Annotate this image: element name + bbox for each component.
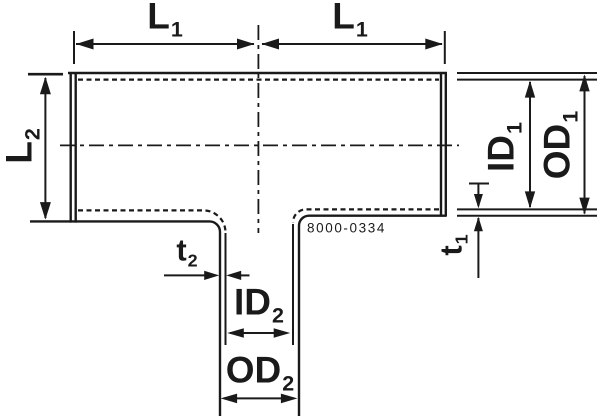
label-subscript: 1 [452,234,472,244]
od1-arrow-up-icon [579,74,589,91]
l2-arrow-up-icon [40,77,51,95]
label-subscript: 2 [282,371,294,395]
tee-outline-svg [0,0,600,416]
label-subscript: 2 [272,303,284,327]
t2-arrow-right-icon [204,271,219,280]
dimension-label-od1: OD1 [539,111,576,179]
dimension-label-l1-right: L1 [332,0,368,35]
dimension-label-t1: t1 [436,234,467,255]
od2-arrow-right-icon [281,394,298,404]
label-subscript: 1 [171,17,183,41]
label-text: L [0,141,40,164]
dimension-label-id2: ID2 [234,284,284,321]
id2-arrow-left-icon [227,328,244,338]
t2-arrow-left-icon [226,271,241,280]
branch-right-outer-wall-and-pipe-bottom-right [299,216,446,416]
dimension-label-l2: L2 [1,128,38,164]
label-text: OD [226,350,282,391]
label-text: ID [481,135,522,172]
dimension-label-l1-left: L1 [147,0,183,35]
label-subscript: 1 [558,111,582,123]
l2-arrow-down-icon [40,202,51,220]
label-text: L [147,0,170,37]
l1-right-arrow-east-icon [425,39,443,50]
centerline-group [60,25,459,233]
dimension-label-t2: t2 [176,235,197,266]
t1-arrow-up-icon [474,217,483,231]
dimension-label-od2: OD2 [226,352,294,389]
pipe-tee-technical-drawing: L1 L1 L2 ID1 OD1 t1 t2 ID2 OD2 8000-0334 [0,0,600,416]
l1-left-arrow-east-icon [237,39,255,50]
part-number: 8000-0334 [307,221,386,236]
id2-arrow-right-icon [274,328,291,338]
t1-arrow-down-icon [474,194,483,208]
label-text: L [332,0,355,37]
id1-arrow-up-icon [525,81,535,98]
l1-right-arrow-west-icon [262,39,280,50]
id1-arrow-down-icon [525,191,535,208]
od1-arrow-down-icon [579,198,589,215]
label-subscript: 2 [20,128,44,140]
label-text: t [434,245,469,255]
dimension-label-id1: ID1 [483,122,520,172]
l1-left-arrow-west-icon [76,39,94,50]
label-text: OD [537,124,578,180]
od2-arrow-left-icon [221,394,238,404]
label-subscript: 1 [502,122,526,134]
label-text: t [176,233,186,268]
label-text: ID [234,282,271,323]
label-subscript: 2 [188,251,198,271]
label-subscript: 1 [356,17,368,41]
